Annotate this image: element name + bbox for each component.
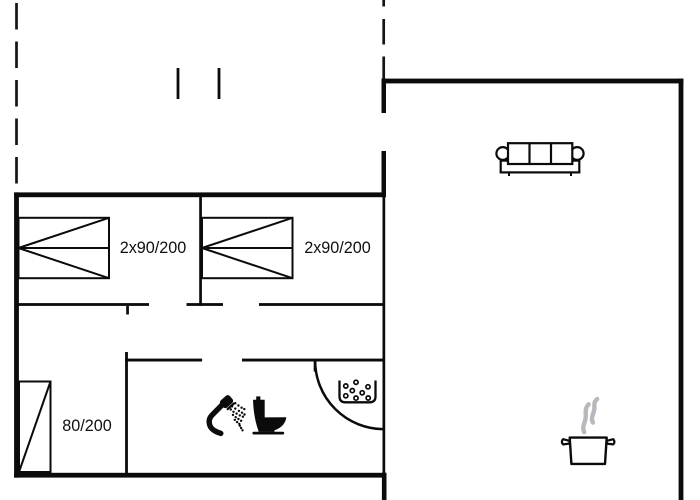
svg-text:80/200: 80/200 xyxy=(62,417,112,435)
svg-text:2x90/200: 2x90/200 xyxy=(120,239,187,257)
svg-text:2x90/200: 2x90/200 xyxy=(304,239,371,257)
